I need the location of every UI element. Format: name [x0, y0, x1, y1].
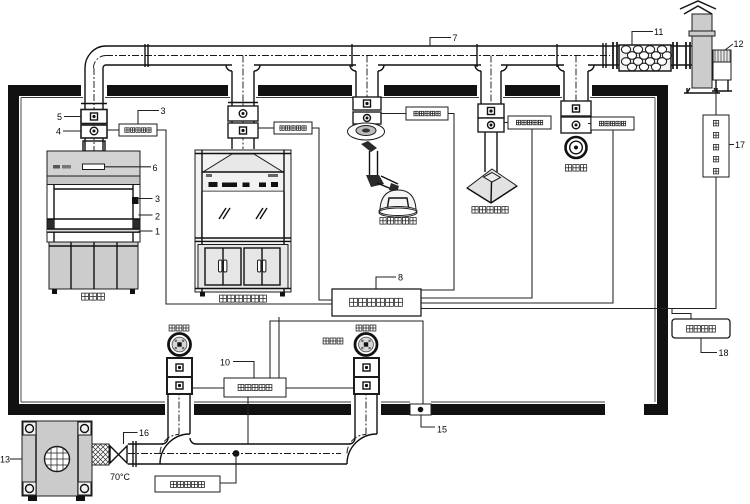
svg-text:5: 5: [57, 112, 62, 122]
svg-text:16: 16: [139, 428, 149, 438]
svg-text:4: 4: [56, 127, 61, 137]
svg-text:1: 1: [155, 227, 160, 237]
svg-text:18: 18: [719, 348, 729, 358]
svg-text:15: 15: [437, 425, 447, 435]
svg-text:3: 3: [155, 194, 160, 204]
svg-text:3: 3: [161, 106, 166, 116]
svg-text:13: 13: [0, 455, 10, 465]
svg-text:6: 6: [153, 163, 158, 173]
svg-text:12: 12: [734, 39, 744, 49]
svg-text:10: 10: [220, 358, 230, 368]
svg-text:2: 2: [155, 212, 160, 222]
svg-text:8: 8: [398, 273, 403, 283]
svg-text:11: 11: [654, 27, 663, 37]
svg-text:7: 7: [453, 33, 458, 43]
svg-text:17: 17: [735, 140, 745, 150]
svg-text:70°C: 70°C: [110, 472, 131, 482]
